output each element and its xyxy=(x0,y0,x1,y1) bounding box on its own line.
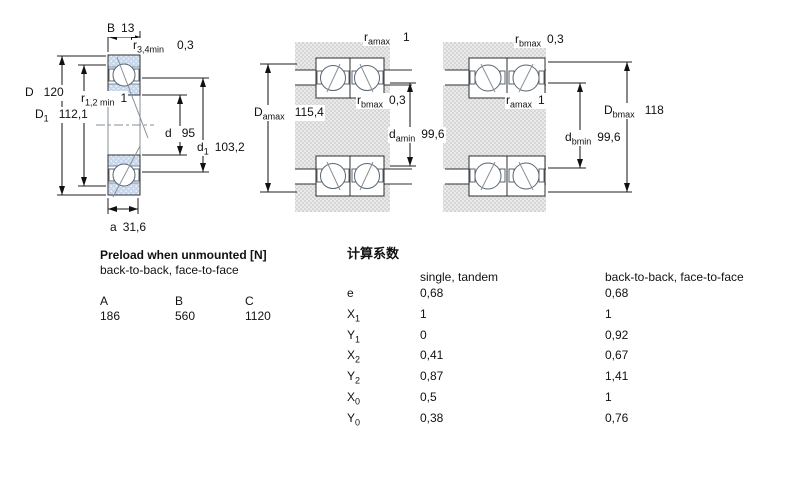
mounted-pair-figure-right xyxy=(443,42,632,212)
dim-label-damin: damin99,6 xyxy=(388,127,446,143)
bearing-datasheet-page: B13 r3,4min0,3 D120 D1112,1 r1,2 min1 d9… xyxy=(0,0,800,500)
dim-Damax xyxy=(260,64,297,192)
dim-label-Damax: Damax115,4 xyxy=(253,105,325,121)
dim-label-D: D120 xyxy=(24,85,65,101)
dim-label-rbmax-top: rbmax0,3 xyxy=(514,32,565,48)
ball-bottom xyxy=(113,164,135,186)
dim-label-dbmin: dbmin99,6 xyxy=(564,130,622,146)
dim-label-D1: D1112,1 xyxy=(34,107,89,123)
dim-Dbmax xyxy=(548,62,632,192)
dim-label-d: d95 xyxy=(164,126,196,142)
factors-col1-header: single, tandem xyxy=(420,270,605,285)
dim-label-Dbmax: Dbmax118 xyxy=(603,103,665,119)
factors-row-X2: X2 0,41 0,67 xyxy=(347,347,744,368)
preload-col-A: A 186 xyxy=(100,294,175,324)
dim-label-d1: d1103,2 xyxy=(196,140,246,156)
factors-row-Y0: Y0 0,38 0,76 xyxy=(347,410,744,431)
dim-label-rbmax-mid: rbmax0,3 xyxy=(356,93,407,109)
dim-label-ramax-mid: ramax1 xyxy=(505,93,546,109)
factors-row-Y1: Y1 0 0,92 xyxy=(347,327,744,348)
dim-label-B: B13 xyxy=(106,21,135,37)
preload-table: Preload when unmounted [N] back-to-back,… xyxy=(100,248,305,324)
dim-label-r12min: r1,2 min1 xyxy=(80,91,128,107)
dim-label-ramax-top: ramax1 xyxy=(363,30,411,46)
factors-row-e: e 0,68 0,68 xyxy=(347,285,744,306)
preload-subtitle: back-to-back, face-to-face xyxy=(100,263,305,278)
preload-col-B: B 560 xyxy=(175,294,245,324)
preload-title: Preload when unmounted [N] xyxy=(100,248,305,263)
dim-d xyxy=(142,95,187,155)
dim-a xyxy=(108,198,138,214)
preload-col-C: C 1120 xyxy=(245,294,305,324)
dim-dbmin xyxy=(548,83,586,168)
factors-header-row: single, tandem back-to-back, face-to-fac… xyxy=(347,270,744,285)
dim-label-a: a31,6 xyxy=(109,220,147,236)
factors-col2-header: back-to-back, face-to-face xyxy=(605,270,744,285)
dim-label-r34min: r3,4min0,3 xyxy=(132,38,195,54)
factors-title: 计算系数 xyxy=(347,246,744,262)
calculation-factors-table: 计算系数 single, tandem back-to-back, face-t… xyxy=(347,246,744,431)
factors-row-X1: X1 1 1 xyxy=(347,306,744,327)
factors-row-X0: X0 0,5 1 xyxy=(347,389,744,410)
factors-row-Y2: Y2 0,87 1,41 xyxy=(347,368,744,389)
